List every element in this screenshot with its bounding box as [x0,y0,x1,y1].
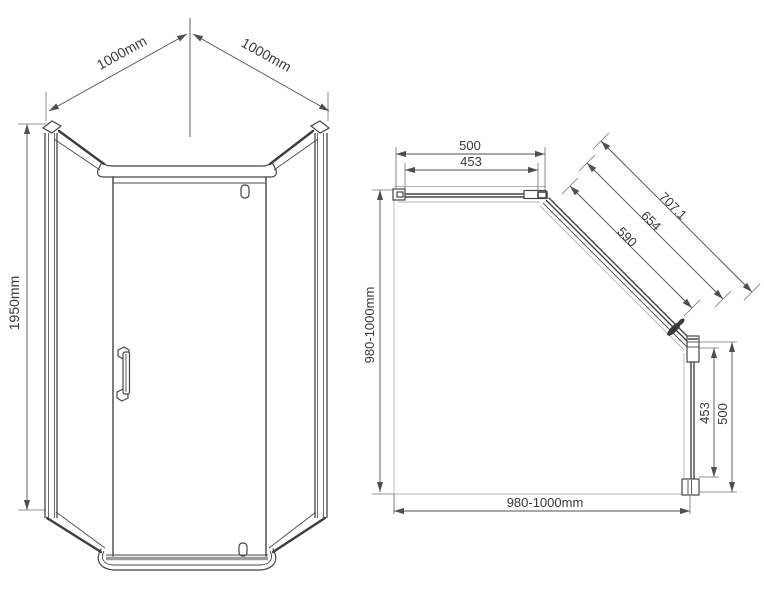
threshold-bar [98,549,276,570]
dim-front-width-right: 1000mm [193,34,329,121]
dim-label-left-depth: 980-1000mm [362,287,377,364]
dim-front-height: 1950mm [6,124,46,510]
wall-profile-right [311,121,329,518]
dim-plan-diagonal-overall: 707.1 [593,133,760,300]
dim-plan-diagonal-mid: 654 [579,155,731,307]
dim-label-front-width-right: 1000mm [239,34,294,74]
side-panel-bottom-edges [47,512,325,552]
door-panel [113,177,266,556]
dim-label-diagonal-overall: 707.1 [656,189,690,223]
dim-label-right-overall: 500 [715,403,730,425]
plan-top-glass [393,189,547,200]
dim-label-plan-top-overall: 500 [459,138,481,153]
plan-view: 500 453 590 654 707.1 [362,133,760,514]
drawing-sheet: 1000mm 1000mm 1950mm [0,0,764,600]
wall-profile-left [43,121,61,518]
dim-label-front-width-left: 1000mm [94,32,149,72]
dim-label-diagonal-mid: 654 [638,208,664,234]
side-panel-top-edges [54,131,318,170]
door-clamp-top [241,185,249,198]
dim-plan-top-glass: 453 [405,154,538,191]
door-top-frame [98,162,277,177]
dim-label-diagonal-glass: 590 [614,224,640,250]
dim-label-plan-top-glass: 453 [460,154,482,169]
door-clamp-bottom [239,543,247,556]
dim-plan-bottom-width: 980-1000mm [394,494,690,514]
wall-bracket-bottom [682,479,699,495]
dim-front-width-left: 1000mm [46,32,187,121]
technical-drawing-canvas: 1000mm 1000mm 1950mm [0,0,764,600]
corner-post [687,336,699,362]
door-handle [117,347,130,401]
dim-label-bottom-width: 980-1000mm [507,495,584,510]
plan-door-diagonal [543,198,699,353]
dim-plan-diagonal-glass: 590 [562,178,700,316]
tray-outline [394,187,699,514]
dim-plan-left-depth: 980-1000mm [362,190,394,494]
dim-label-right-glass: 453 [697,402,712,424]
dim-label-front-height: 1950mm [6,276,22,330]
front-elevation-view: 1000mm 1000mm 1950mm [6,18,329,570]
